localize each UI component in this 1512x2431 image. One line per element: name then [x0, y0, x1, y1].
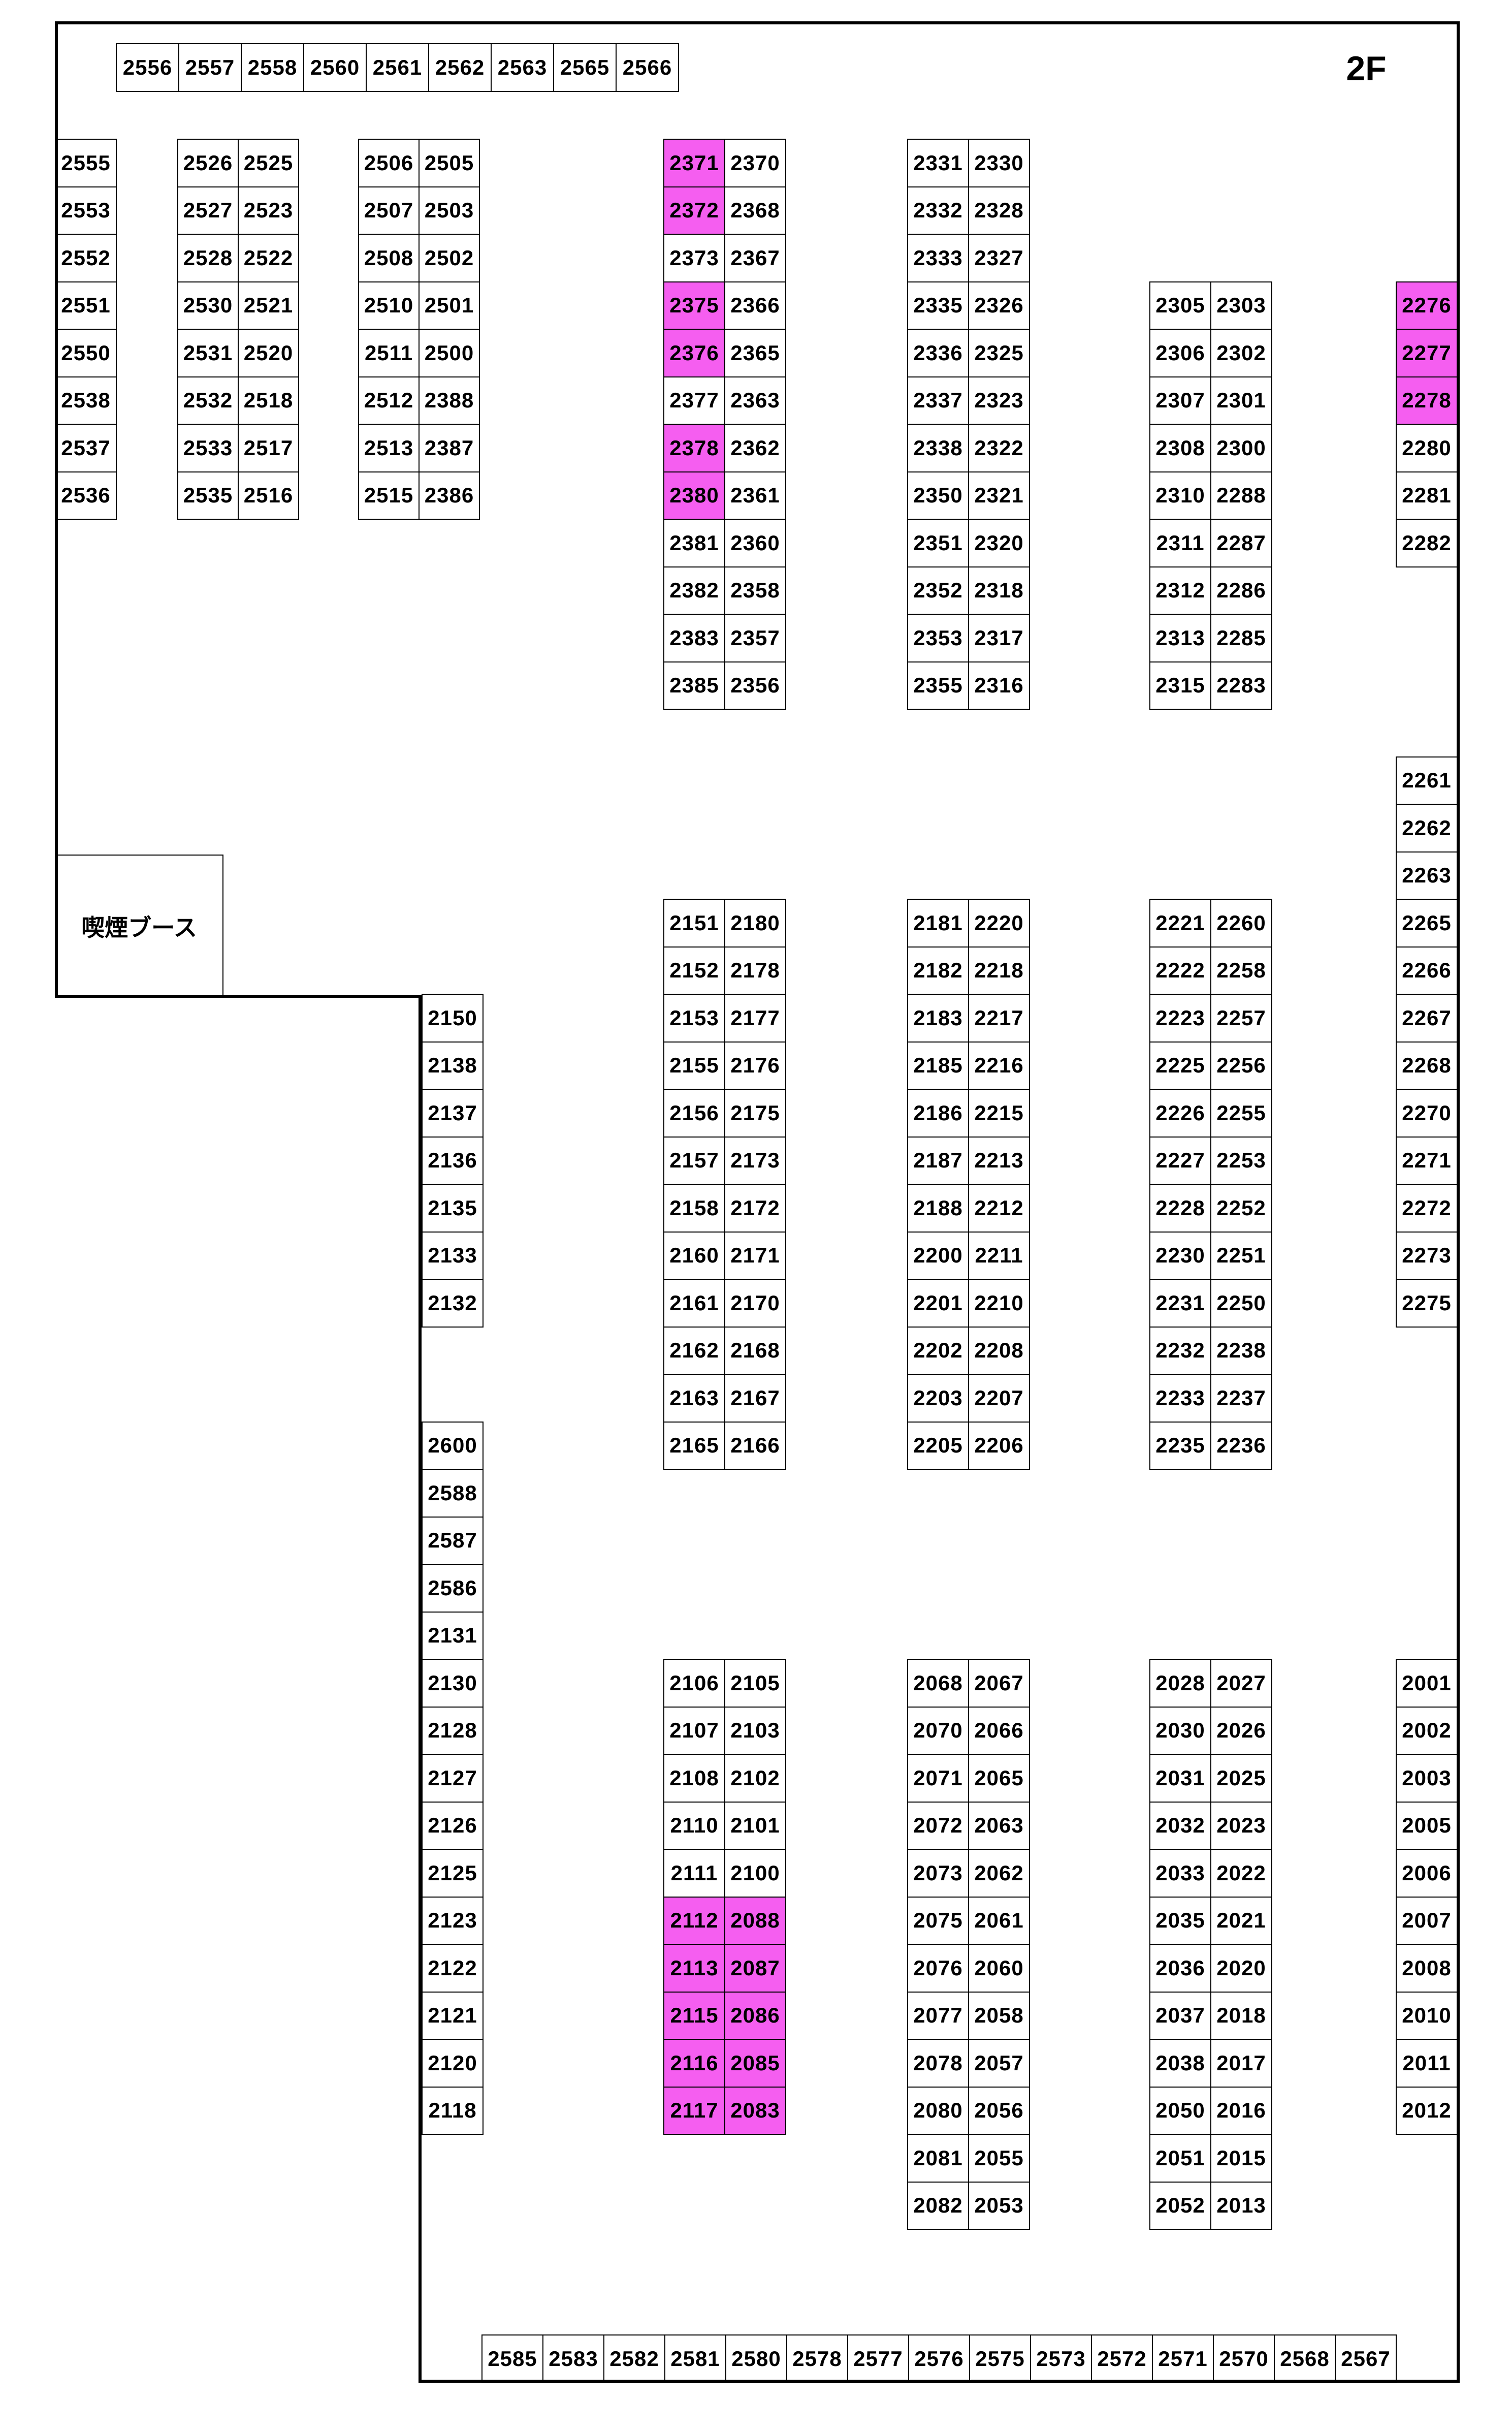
hall-wall	[55, 21, 1460, 24]
booth-2522: 2522	[238, 234, 299, 282]
booth-2120: 2120	[422, 2039, 484, 2088]
booth-2506: 2506	[358, 139, 420, 187]
booth-2570: 2570	[1213, 2334, 1275, 2383]
booth-2006: 2006	[1396, 1849, 1458, 1898]
booth-2501: 2501	[419, 281, 480, 330]
booth-2376: 2376	[663, 329, 725, 377]
booth-2155: 2155	[663, 1041, 725, 1090]
booth-2215: 2215	[968, 1089, 1030, 1138]
booth-2071: 2071	[907, 1754, 969, 1803]
booth-2087: 2087	[724, 1944, 786, 1993]
booth-2268: 2268	[1396, 1041, 1458, 1090]
booth-2282: 2282	[1396, 519, 1458, 567]
booth-2230: 2230	[1149, 1232, 1211, 1280]
booth-2102: 2102	[724, 1754, 786, 1803]
booth-2283: 2283	[1210, 661, 1272, 710]
booth-2537: 2537	[55, 424, 117, 472]
booth-2011: 2011	[1396, 2039, 1458, 2088]
booth-2538: 2538	[55, 376, 117, 425]
booth-2276: 2276	[1396, 281, 1458, 330]
booth-2586: 2586	[422, 1564, 484, 1613]
booth-2012: 2012	[1396, 2087, 1458, 2135]
booth-2131: 2131	[422, 1612, 484, 1660]
booth-2057: 2057	[968, 2039, 1030, 2088]
booth-2581: 2581	[664, 2334, 726, 2383]
booth-2335: 2335	[907, 281, 969, 330]
booth-2053: 2053	[968, 2182, 1030, 2230]
booth-2531: 2531	[177, 329, 239, 377]
booth-2100: 2100	[724, 1849, 786, 1898]
booth-2085: 2085	[724, 2039, 786, 2088]
booth-2328: 2328	[968, 186, 1030, 235]
booth-2026: 2026	[1210, 1707, 1272, 1755]
booth-2112: 2112	[663, 1897, 725, 1945]
booth-2307: 2307	[1149, 376, 1211, 425]
booth-2372: 2372	[663, 186, 725, 235]
booth-2286: 2286	[1210, 566, 1272, 615]
booth-2333: 2333	[907, 234, 969, 282]
booth-2562: 2562	[428, 43, 492, 92]
booth-2325: 2325	[968, 329, 1030, 377]
booth-2170: 2170	[724, 1279, 786, 1328]
booth-2366: 2366	[724, 281, 786, 330]
booth-2030: 2030	[1149, 1707, 1211, 1755]
booth-2218: 2218	[968, 946, 1030, 995]
booth-2018: 2018	[1210, 1992, 1272, 2040]
booth-2583: 2583	[542, 2334, 604, 2383]
booth-2383: 2383	[663, 614, 725, 662]
booth-2233: 2233	[1149, 1374, 1211, 1423]
booth-2275: 2275	[1396, 1279, 1458, 1328]
booth-2175: 2175	[724, 1089, 786, 1138]
hall-wall	[55, 21, 58, 998]
booth-2525: 2525	[238, 139, 299, 187]
booth-2177: 2177	[724, 994, 786, 1043]
booth-2166: 2166	[724, 1422, 786, 1470]
booth-2580: 2580	[725, 2334, 787, 2383]
booth-2128: 2128	[422, 1707, 484, 1755]
booth-2020: 2020	[1210, 1944, 1272, 1993]
booth-2557: 2557	[178, 43, 242, 92]
booth-2031: 2031	[1149, 1754, 1211, 1803]
booth-2536: 2536	[55, 471, 117, 520]
booth-2387: 2387	[419, 424, 480, 472]
booth-2280: 2280	[1396, 424, 1458, 472]
booth-2222: 2222	[1149, 946, 1211, 995]
booth-2266: 2266	[1396, 946, 1458, 995]
booth-2183: 2183	[907, 994, 969, 1043]
booth-2105: 2105	[724, 1659, 786, 1708]
booth-2566: 2566	[616, 43, 679, 92]
booth-2150: 2150	[422, 994, 484, 1043]
booth-2503: 2503	[419, 186, 480, 235]
booth-2158: 2158	[663, 1184, 725, 1233]
booth-2055: 2055	[968, 2134, 1030, 2183]
booth-2082: 2082	[907, 2182, 969, 2230]
booth-2250: 2250	[1210, 1279, 1272, 1328]
booth-2561: 2561	[366, 43, 429, 92]
booth-2368: 2368	[724, 186, 786, 235]
booth-2137: 2137	[422, 1089, 484, 1138]
booth-2578: 2578	[786, 2334, 848, 2383]
booth-2380: 2380	[663, 471, 725, 520]
booth-2178: 2178	[724, 946, 786, 995]
booth-2508: 2508	[358, 234, 420, 282]
booth-2115: 2115	[663, 1992, 725, 2040]
booth-2132: 2132	[422, 1279, 484, 1328]
booth-2182: 2182	[907, 946, 969, 995]
booth-2353: 2353	[907, 614, 969, 662]
booth-2127: 2127	[422, 1754, 484, 1803]
booth-2185: 2185	[907, 1041, 969, 1090]
booth-2311: 2311	[1149, 519, 1211, 567]
booth-2263: 2263	[1396, 851, 1458, 900]
booth-2135: 2135	[422, 1184, 484, 1233]
booth-2270: 2270	[1396, 1089, 1458, 1138]
booth-2288: 2288	[1210, 471, 1272, 520]
booth-2262: 2262	[1396, 804, 1458, 853]
booth-2066: 2066	[968, 1707, 1030, 1755]
booth-2101: 2101	[724, 1802, 786, 1850]
booth-2507: 2507	[358, 186, 420, 235]
booth-2121: 2121	[422, 1992, 484, 2040]
booth-2382: 2382	[663, 566, 725, 615]
booth-2323: 2323	[968, 376, 1030, 425]
booth-2025: 2025	[1210, 1754, 1272, 1803]
booth-2157: 2157	[663, 1136, 725, 1185]
booth-2038: 2038	[1149, 2039, 1211, 2088]
booth-2001: 2001	[1396, 1659, 1458, 1708]
booth-2081: 2081	[907, 2134, 969, 2183]
booth-2355: 2355	[907, 661, 969, 710]
booth-2176: 2176	[724, 1041, 786, 1090]
booth-2600: 2600	[422, 1422, 484, 1470]
booth-2110: 2110	[663, 1802, 725, 1850]
booth-2278: 2278	[1396, 376, 1458, 425]
booth-2207: 2207	[968, 1374, 1030, 1423]
booth-2386: 2386	[419, 471, 480, 520]
booth-2532: 2532	[177, 376, 239, 425]
booth-2338: 2338	[907, 424, 969, 472]
booth-2260: 2260	[1210, 899, 1272, 948]
booth-2072: 2072	[907, 1802, 969, 1850]
booth-2103: 2103	[724, 1707, 786, 1755]
booth-2050: 2050	[1149, 2087, 1211, 2135]
booth-2165: 2165	[663, 1422, 725, 1470]
booth-2117: 2117	[663, 2087, 725, 2135]
booth-2068: 2068	[907, 1659, 969, 1708]
booth-2111: 2111	[663, 1849, 725, 1898]
booth-2281: 2281	[1396, 471, 1458, 520]
booth-2502: 2502	[419, 234, 480, 282]
booth-2303: 2303	[1210, 281, 1272, 330]
booth-2212: 2212	[968, 1184, 1030, 1233]
booth-2363: 2363	[724, 376, 786, 425]
booth-2027: 2027	[1210, 1659, 1272, 1708]
hall-wall	[1457, 21, 1460, 2383]
booth-2126: 2126	[422, 1802, 484, 1850]
booth-2310: 2310	[1149, 471, 1211, 520]
booth-2108: 2108	[663, 1754, 725, 1803]
booth-2003: 2003	[1396, 1754, 1458, 1803]
booth-2350: 2350	[907, 471, 969, 520]
booth-2123: 2123	[422, 1897, 484, 1945]
booth-2558: 2558	[241, 43, 304, 92]
booth-2322: 2322	[968, 424, 1030, 472]
booth-2587: 2587	[422, 1517, 484, 1565]
booth-2373: 2373	[663, 234, 725, 282]
hall-wall	[419, 995, 422, 2383]
booth-2032: 2032	[1149, 1802, 1211, 1850]
booth-2173: 2173	[724, 1136, 786, 1185]
booth-2552: 2552	[55, 234, 117, 282]
booth-2582: 2582	[603, 2334, 665, 2383]
booth-2330: 2330	[968, 139, 1030, 187]
booth-2156: 2156	[663, 1089, 725, 1138]
booth-2365: 2365	[724, 329, 786, 377]
booth-2257: 2257	[1210, 994, 1272, 1043]
booth-2528: 2528	[177, 234, 239, 282]
booth-2078: 2078	[907, 2039, 969, 2088]
booth-2180: 2180	[724, 899, 786, 948]
booth-2577: 2577	[847, 2334, 909, 2383]
hall-wall	[419, 2380, 1460, 2383]
booth-2028: 2028	[1149, 1659, 1211, 1708]
booth-2378: 2378	[663, 424, 725, 472]
floor-label: 2F	[1305, 46, 1427, 91]
booth-2203: 2203	[907, 1374, 969, 1423]
booth-2571: 2571	[1152, 2334, 1214, 2383]
booth-2267: 2267	[1396, 994, 1458, 1043]
booth-2381: 2381	[663, 519, 725, 567]
booth-2308: 2308	[1149, 424, 1211, 472]
booth-2076: 2076	[907, 1944, 969, 1993]
booth-2051: 2051	[1149, 2134, 1211, 2183]
booth-2526: 2526	[177, 139, 239, 187]
booth-2362: 2362	[724, 424, 786, 472]
booth-2118: 2118	[422, 2087, 484, 2135]
booth-2316: 2316	[968, 661, 1030, 710]
smoking-booth-label: 喫煙ブース	[81, 909, 197, 943]
booth-2520: 2520	[238, 329, 299, 377]
booth-2188: 2188	[907, 1184, 969, 1233]
booth-2550: 2550	[55, 329, 117, 377]
booth-2287: 2287	[1210, 519, 1272, 567]
booth-2258: 2258	[1210, 946, 1272, 995]
booth-2075: 2075	[907, 1897, 969, 1945]
booth-2167: 2167	[724, 1374, 786, 1423]
smoking-booth: 喫煙ブース	[55, 855, 223, 997]
booth-2058: 2058	[968, 1992, 1030, 2040]
booth-2271: 2271	[1396, 1136, 1458, 1185]
booth-2575: 2575	[969, 2334, 1031, 2383]
booth-2527: 2527	[177, 186, 239, 235]
booth-2300: 2300	[1210, 424, 1272, 472]
booth-2138: 2138	[422, 1041, 484, 1090]
booth-2130: 2130	[422, 1659, 484, 1708]
booth-2235: 2235	[1149, 1422, 1211, 1470]
booth-2237: 2237	[1210, 1374, 1272, 1423]
booth-2088: 2088	[724, 1897, 786, 1945]
booth-2065: 2065	[968, 1754, 1030, 1803]
booth-2388: 2388	[419, 376, 480, 425]
booth-2321: 2321	[968, 471, 1030, 520]
booth-2332: 2332	[907, 186, 969, 235]
booth-2171: 2171	[724, 1232, 786, 1280]
booth-2002: 2002	[1396, 1707, 1458, 1755]
booth-2086: 2086	[724, 1992, 786, 2040]
booth-2556: 2556	[116, 43, 179, 92]
booth-2563: 2563	[491, 43, 554, 92]
booth-2113: 2113	[663, 1944, 725, 1993]
booth-2216: 2216	[968, 1041, 1030, 1090]
booth-2252: 2252	[1210, 1184, 1272, 1233]
floor-map: 2F 喫煙ブース 2556255725582560256125622563256…	[0, 0, 1512, 2431]
booth-2021: 2021	[1210, 1897, 1272, 1945]
booth-2036: 2036	[1149, 1944, 1211, 1993]
booth-2152: 2152	[663, 946, 725, 995]
booth-2005: 2005	[1396, 1802, 1458, 1850]
booth-2572: 2572	[1091, 2334, 1153, 2383]
booth-2153: 2153	[663, 994, 725, 1043]
booth-2106: 2106	[663, 1659, 725, 1708]
booth-2107: 2107	[663, 1707, 725, 1755]
booth-2013: 2013	[1210, 2182, 1272, 2230]
hall-wall	[55, 995, 422, 998]
booth-2327: 2327	[968, 234, 1030, 282]
booth-2320: 2320	[968, 519, 1030, 567]
booth-2061: 2061	[968, 1897, 1030, 1945]
booth-2210: 2210	[968, 1279, 1030, 1328]
booth-2256: 2256	[1210, 1041, 1272, 1090]
booth-2285: 2285	[1210, 614, 1272, 662]
booth-2067: 2067	[968, 1659, 1030, 1708]
booth-2516: 2516	[238, 471, 299, 520]
booth-2160: 2160	[663, 1232, 725, 1280]
booth-2367: 2367	[724, 234, 786, 282]
booth-2553: 2553	[55, 186, 117, 235]
booth-2080: 2080	[907, 2087, 969, 2135]
booth-2037: 2037	[1149, 1992, 1211, 2040]
booth-2035: 2035	[1149, 1897, 1211, 1945]
booth-2022: 2022	[1210, 1849, 1272, 1898]
booth-2033: 2033	[1149, 1849, 1211, 1898]
booth-2277: 2277	[1396, 329, 1458, 377]
booth-2505: 2505	[419, 139, 480, 187]
booth-2356: 2356	[724, 661, 786, 710]
booth-2231: 2231	[1149, 1279, 1211, 1328]
booth-2521: 2521	[238, 281, 299, 330]
booth-2576: 2576	[908, 2334, 970, 2383]
booth-2360: 2360	[724, 519, 786, 567]
booth-2560: 2560	[303, 43, 367, 92]
booth-2056: 2056	[968, 2087, 1030, 2135]
booth-2213: 2213	[968, 1136, 1030, 1185]
booth-2206: 2206	[968, 1422, 1030, 1470]
booth-2116: 2116	[663, 2039, 725, 2088]
booth-2200: 2200	[907, 1232, 969, 1280]
booth-2510: 2510	[358, 281, 420, 330]
booth-2228: 2228	[1149, 1184, 1211, 1233]
booth-2161: 2161	[663, 1279, 725, 1328]
booth-2255: 2255	[1210, 1089, 1272, 1138]
booth-2181: 2181	[907, 899, 969, 948]
booth-2375: 2375	[663, 281, 725, 330]
booth-2201: 2201	[907, 1279, 969, 1328]
booth-2261: 2261	[1396, 756, 1458, 805]
booth-2517: 2517	[238, 424, 299, 472]
booth-2125: 2125	[422, 1849, 484, 1898]
booth-2585: 2585	[481, 2334, 543, 2383]
booth-2312: 2312	[1149, 566, 1211, 615]
booth-2017: 2017	[1210, 2039, 1272, 2088]
booth-2512: 2512	[358, 376, 420, 425]
booth-2301: 2301	[1210, 376, 1272, 425]
booth-2223: 2223	[1149, 994, 1211, 1043]
booth-2555: 2555	[55, 139, 117, 187]
booth-2226: 2226	[1149, 1089, 1211, 1138]
booth-2062: 2062	[968, 1849, 1030, 1898]
booth-2253: 2253	[1210, 1136, 1272, 1185]
booth-2232: 2232	[1149, 1327, 1211, 1375]
booth-2227: 2227	[1149, 1136, 1211, 1185]
booth-2063: 2063	[968, 1802, 1030, 1850]
booth-2208: 2208	[968, 1327, 1030, 1375]
booth-2302: 2302	[1210, 329, 1272, 377]
booth-2518: 2518	[238, 376, 299, 425]
booth-2515: 2515	[358, 471, 420, 520]
booth-2023: 2023	[1210, 1802, 1272, 1850]
booth-2385: 2385	[663, 661, 725, 710]
booth-2172: 2172	[724, 1184, 786, 1233]
booth-2205: 2205	[907, 1422, 969, 1470]
booth-2168: 2168	[724, 1327, 786, 1375]
booth-2361: 2361	[724, 471, 786, 520]
booth-2352: 2352	[907, 566, 969, 615]
booth-2317: 2317	[968, 614, 1030, 662]
booth-2551: 2551	[55, 281, 117, 330]
booth-2357: 2357	[724, 614, 786, 662]
booth-2163: 2163	[663, 1374, 725, 1423]
booth-2238: 2238	[1210, 1327, 1272, 1375]
booth-2187: 2187	[907, 1136, 969, 1185]
booth-2010: 2010	[1396, 1992, 1458, 2040]
booth-2007: 2007	[1396, 1897, 1458, 1945]
booth-2535: 2535	[177, 471, 239, 520]
booth-2306: 2306	[1149, 329, 1211, 377]
booth-2331: 2331	[907, 139, 969, 187]
booth-2225: 2225	[1149, 1041, 1211, 1090]
booth-2358: 2358	[724, 566, 786, 615]
booth-2073: 2073	[907, 1849, 969, 1898]
booth-2122: 2122	[422, 1944, 484, 1993]
booth-2070: 2070	[907, 1707, 969, 1755]
booth-2008: 2008	[1396, 1944, 1458, 1993]
booth-2523: 2523	[238, 186, 299, 235]
booth-2015: 2015	[1210, 2134, 1272, 2183]
booth-2567: 2567	[1335, 2334, 1397, 2383]
booth-2377: 2377	[663, 376, 725, 425]
booth-2336: 2336	[907, 329, 969, 377]
booth-2573: 2573	[1030, 2334, 1092, 2383]
booth-2060: 2060	[968, 1944, 1030, 1993]
booth-2370: 2370	[724, 139, 786, 187]
booth-2265: 2265	[1396, 899, 1458, 948]
booth-2211: 2211	[968, 1232, 1030, 1280]
booth-2202: 2202	[907, 1327, 969, 1375]
booth-2220: 2220	[968, 899, 1030, 948]
booth-2162: 2162	[663, 1327, 725, 1375]
